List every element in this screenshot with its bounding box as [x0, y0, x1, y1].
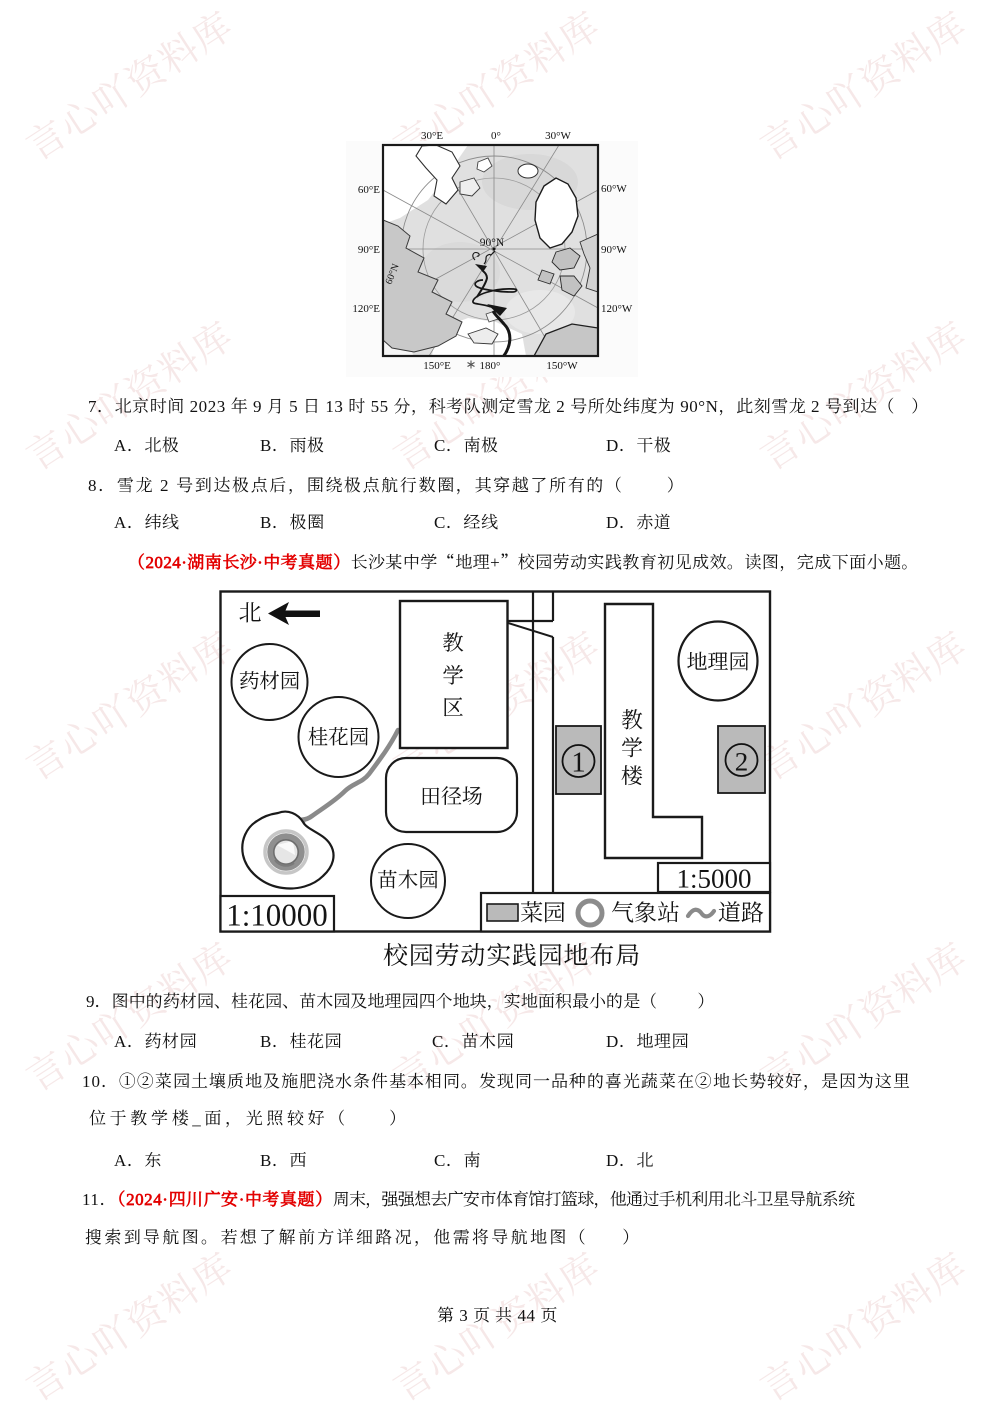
svg-text:1:5000: 1:5000: [676, 864, 751, 894]
svg-text:楼: 楼: [621, 764, 643, 789]
svg-text:北: 北: [239, 601, 262, 626]
svg-text:菜园: 菜园: [520, 901, 566, 926]
svg-text:120°E: 120°E: [352, 303, 380, 315]
svg-text:学: 学: [621, 736, 643, 761]
svg-text:150°W: 150°W: [546, 360, 578, 372]
svg-text:教: 教: [442, 631, 464, 655]
svg-text:30°E: 30°E: [421, 130, 443, 142]
svg-text:学: 学: [442, 664, 464, 688]
svg-text:苗木园: 苗木园: [377, 869, 439, 892]
svg-text:气象站: 气象站: [611, 901, 680, 926]
svg-text:180°: 180°: [480, 360, 501, 372]
svg-text:60°W: 60°W: [601, 183, 627, 195]
svg-text:区: 区: [442, 696, 464, 720]
svg-text:30°W: 30°W: [545, 130, 571, 142]
svg-text:2: 2: [735, 747, 749, 777]
svg-text:120°W: 120°W: [601, 303, 633, 315]
svg-text:地理园: 地理园: [687, 650, 750, 674]
svg-text:60°E: 60°E: [358, 184, 380, 196]
svg-text:0°: 0°: [491, 130, 501, 142]
svg-text:道路: 道路: [718, 901, 764, 926]
svg-text:药材园: 药材园: [239, 670, 301, 693]
svg-text:90°W: 90°W: [601, 244, 627, 256]
svg-text:桂花园: 桂花园: [308, 726, 370, 749]
svg-text:田径场: 田径场: [420, 785, 483, 809]
svg-text:90°N: 90°N: [480, 237, 505, 249]
svg-text:90°E: 90°E: [358, 244, 380, 256]
svg-text:教: 教: [621, 708, 643, 733]
svg-text:150°E: 150°E: [423, 360, 451, 372]
svg-text:1: 1: [571, 747, 586, 779]
svg-text:1:10000: 1:10000: [226, 898, 328, 933]
